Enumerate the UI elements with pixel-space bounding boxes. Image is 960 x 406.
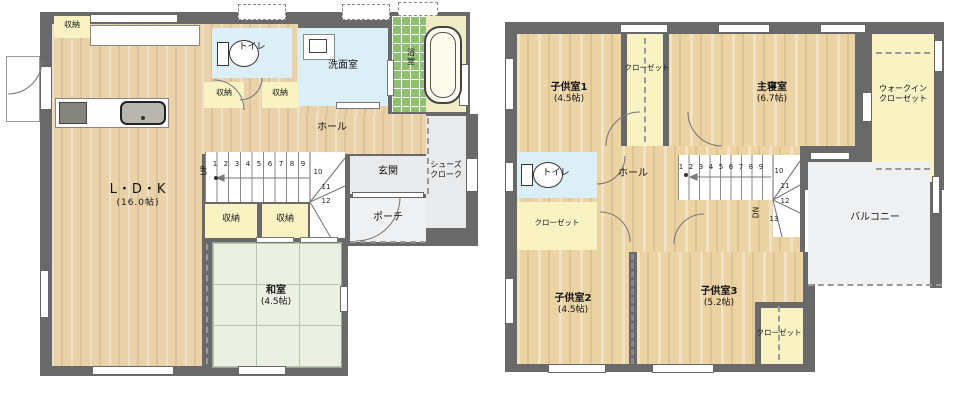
f2-stairs-dn-label: DN bbox=[752, 205, 761, 221]
f2-kids2-bottom-window bbox=[548, 364, 606, 373]
stair-step-number: 10 bbox=[774, 167, 784, 175]
stair-step-number: 8 bbox=[746, 163, 756, 171]
label-kids1: 子供室1 (4.5帖) bbox=[518, 82, 620, 105]
f2-top-window-1 bbox=[620, 24, 668, 33]
floor-plan-canvas: 1 2 3 4 5 6 7 8 9 10 11 12 UP bbox=[0, 0, 960, 406]
stair-step-number: 7 bbox=[736, 163, 746, 171]
kids1-size: (4.5帖) bbox=[518, 94, 620, 105]
f2-balcony-slider bbox=[810, 152, 850, 160]
f2-top-window-3 bbox=[820, 24, 866, 33]
f2-wic-rail-bottom bbox=[876, 168, 930, 170]
f2-master-door-arc bbox=[688, 112, 722, 146]
f2-kids1-door-arc bbox=[606, 112, 640, 146]
f2-kids3-bottom-window bbox=[652, 364, 714, 373]
label-toilet-2f: トイレ bbox=[531, 168, 581, 179]
label-closet-under-toilet: クローゼット bbox=[522, 218, 592, 227]
label-hall-2f: ホール bbox=[607, 168, 659, 180]
stair-step-number: 3 bbox=[696, 163, 706, 171]
label-kids3: 子供室3 (5.2帖) bbox=[668, 286, 770, 309]
label-balcony: バルコニー bbox=[830, 212, 920, 224]
stair-step-number: 6 bbox=[726, 163, 736, 171]
label-master: 主寝室 (6.7帖) bbox=[722, 82, 822, 105]
f2-wic-floor bbox=[872, 34, 934, 182]
f2-balcony-right-window bbox=[932, 176, 940, 214]
f2-kids2-door-arc bbox=[600, 212, 630, 242]
label-kids3-closet: クローゼット bbox=[749, 328, 809, 337]
f2-wic-right-window bbox=[934, 40, 943, 72]
label-closet-strip: クローゼット bbox=[618, 63, 676, 72]
f2-closet-strip-track bbox=[644, 38, 646, 142]
f2-top-window-2 bbox=[718, 24, 770, 33]
stair-step-number: 13 bbox=[769, 215, 779, 223]
f2-toilet-left-window bbox=[505, 162, 514, 192]
kids2-name: 子供室2 bbox=[522, 293, 624, 305]
master-name: 主寝室 bbox=[722, 82, 822, 94]
stair-step-number: 4 bbox=[706, 163, 716, 171]
f2-stairs-start-dot bbox=[684, 173, 688, 177]
stair-step-number: 2 bbox=[686, 163, 696, 171]
stair-step-number: 12 bbox=[780, 197, 790, 205]
f2-kids-partition bbox=[631, 254, 634, 364]
stair-step-number: 9 bbox=[756, 163, 766, 171]
stair-step-number: 11 bbox=[780, 182, 790, 190]
kids1-name: 子供室1 bbox=[518, 82, 620, 94]
wic-line1: ウォークイン bbox=[871, 84, 935, 94]
floor2-plan: 1 2 3 4 5 6 7 8 9 10 11 12 13 DN bbox=[0, 0, 960, 406]
stair-step-number: 1 bbox=[676, 163, 686, 171]
master-size: (6.7帖) bbox=[722, 94, 822, 105]
label-kids2: 子供室2 (4.5帖) bbox=[522, 293, 624, 316]
label-wic: ウォークイン クローゼット bbox=[871, 84, 935, 103]
kids3-size: (5.2帖) bbox=[668, 298, 770, 309]
f2-balcony-edge bbox=[808, 284, 942, 286]
stair-step-number: 5 bbox=[716, 163, 726, 171]
f2-kids2-left-window bbox=[505, 278, 514, 324]
wic-line2: クローゼット bbox=[871, 94, 935, 104]
f2-wic-rail-top bbox=[876, 52, 930, 54]
f2-kids1-left-window bbox=[505, 58, 514, 110]
kids3-name: 子供室3 bbox=[668, 286, 770, 298]
kids2-size: (4.5帖) bbox=[522, 305, 624, 316]
f2-kids3-door-arc bbox=[674, 214, 704, 244]
